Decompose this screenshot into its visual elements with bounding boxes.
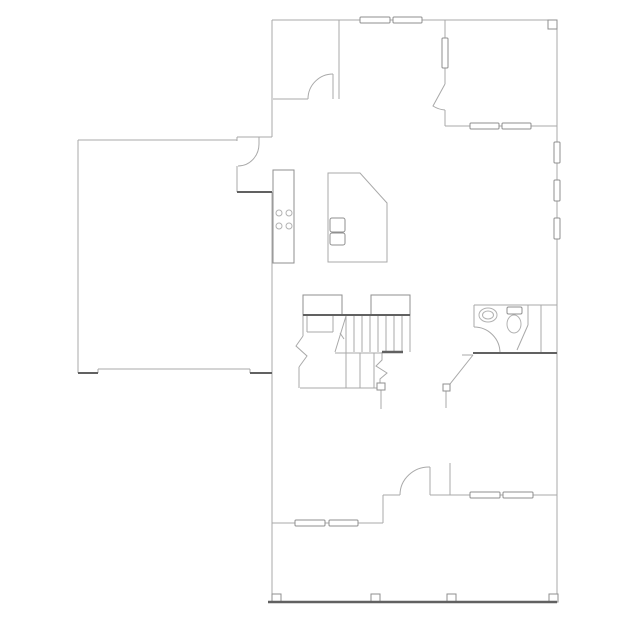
window-interior-wall [442, 38, 448, 68]
stove-burner [286, 210, 292, 216]
floorplan-page [0, 0, 639, 639]
window-right-1 [554, 142, 560, 163]
window-rightroom-1 [470, 123, 499, 129]
door-leaf-rightroom [433, 84, 445, 110]
window-top-1 [360, 17, 390, 23]
door-arc-bathroom [474, 327, 500, 353]
stove-burner [276, 223, 282, 229]
floorplan [0, 0, 639, 639]
stairs-break-left [296, 336, 307, 367]
doors-group [238, 74, 528, 495]
dark-walls-group [78, 192, 557, 602]
stairs-break-right [376, 352, 387, 383]
island-sink-lower [330, 233, 345, 245]
stair-direction-tick [340, 333, 344, 339]
island-sink-upper [330, 218, 345, 232]
door-arc-front [400, 467, 430, 495]
window-frontleft-2 [329, 520, 358, 526]
fixtures-group [272, 20, 558, 602]
window-frontleft-1 [295, 520, 325, 526]
kitchen-counter [273, 170, 294, 263]
window-front-1 [470, 492, 500, 498]
door-symbol-square-stairs [377, 383, 385, 390]
window-right-3 [554, 218, 560, 239]
stove-burner [276, 210, 282, 216]
door-arc-upperroom [308, 74, 333, 99]
door-arc-garage [238, 144, 259, 166]
stair-newel-right [371, 295, 410, 315]
stair-newel-left [303, 295, 342, 315]
door-symbol-diagonal-bath [450, 355, 473, 384]
window-front-2 [503, 492, 533, 498]
bathroom-sink-inner [483, 311, 494, 319]
toilet-tank [507, 307, 522, 314]
toilet-bowl [507, 315, 521, 333]
door-symbol-square-bath [443, 384, 450, 391]
window-right-2 [554, 180, 560, 201]
window-rightroom-2 [502, 123, 531, 129]
stove-burner [286, 223, 292, 229]
window-top-2 [393, 17, 422, 23]
corner-post [548, 20, 557, 29]
windows-group [295, 17, 560, 526]
